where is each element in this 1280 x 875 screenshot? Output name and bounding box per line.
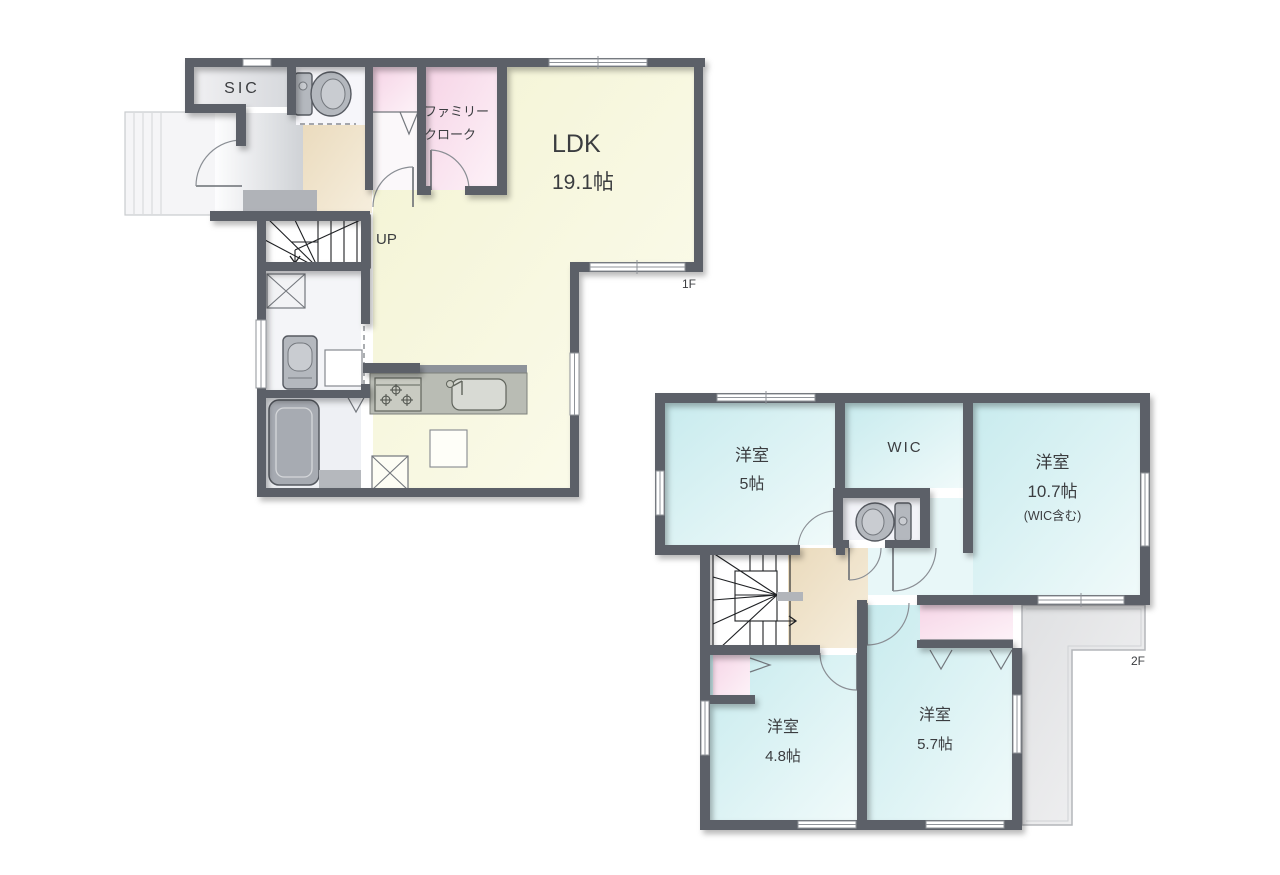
bedroom107-label: 洋室 10.7帖 (WIC含む): [985, 452, 1120, 524]
bedroom57-closet: [920, 600, 1013, 640]
toilet-icon-1f: [295, 72, 351, 116]
bedroom5-label: 洋室 5帖: [702, 445, 802, 496]
window: [798, 821, 856, 828]
stairs-up-label: UP: [376, 230, 397, 250]
sink-icon: [447, 379, 507, 410]
balcony: [1022, 605, 1145, 825]
stairs-2f: [713, 550, 803, 648]
ldk-size: 19.1帖: [552, 169, 672, 196]
window: [656, 471, 664, 515]
window: [243, 59, 271, 66]
ldk-label: LDK 19.1帖: [552, 128, 672, 196]
family-cloak-line2: クローク: [424, 127, 500, 144]
closet-floor-1f: [373, 112, 417, 192]
family-cloak-label: ファミリー クローク: [424, 104, 500, 144]
window: [256, 320, 266, 388]
window: [1013, 695, 1021, 753]
bedroom5-name: 洋室: [702, 445, 802, 467]
bedroom5-size: 5帖: [702, 475, 802, 496]
window: [1141, 473, 1149, 546]
closet-1f: [373, 67, 417, 112]
bath-counter: [319, 470, 361, 488]
washer-space: [325, 350, 362, 386]
floor1-plan: [125, 56, 705, 497]
bedroom107-access: [930, 498, 963, 548]
bedroom48-label: 洋室 4.8帖: [733, 718, 833, 766]
sic-label: SIC: [197, 79, 287, 100]
family-cloak-line1: ファミリー: [424, 104, 500, 121]
bedroom57-size: 5.7帖: [885, 735, 985, 755]
bedroom107-note: (WIC含む): [985, 508, 1120, 524]
window: [926, 821, 1004, 828]
bedroom48-closet: [713, 650, 750, 695]
floor-plan-canvas: SIC ファミリー クローク LDK 19.1帖 UP 1F 洋室 5帖 WIC…: [0, 0, 1280, 875]
floor1-tag: 1F: [682, 277, 696, 293]
bedroom48-size: 4.8帖: [733, 747, 833, 767]
floor2-tag: 2F: [1131, 654, 1145, 670]
wic-label: WIC: [855, 438, 955, 458]
bedroom107-nook: [867, 548, 973, 595]
closet-box-ldk: [372, 456, 408, 490]
table-square: [430, 430, 467, 467]
genkan-step: [243, 190, 317, 213]
bedroom57-name: 洋室: [885, 706, 985, 727]
stairs-1f: [265, 215, 370, 268]
toilet-icon-2f: [856, 503, 911, 541]
window: [570, 353, 579, 415]
bedroom107-size: 10.7帖: [985, 481, 1120, 503]
bedroom48-name: 洋室: [733, 718, 833, 739]
stove-icon: [375, 378, 421, 411]
ldk-name: LDK: [552, 128, 672, 161]
closet-box-washroom: [267, 274, 305, 308]
window: [701, 701, 709, 755]
bedroom107-name: 洋室: [985, 452, 1120, 474]
bedroom57-label: 洋室 5.7帖: [885, 706, 985, 754]
washbasin-icon: [283, 336, 317, 389]
